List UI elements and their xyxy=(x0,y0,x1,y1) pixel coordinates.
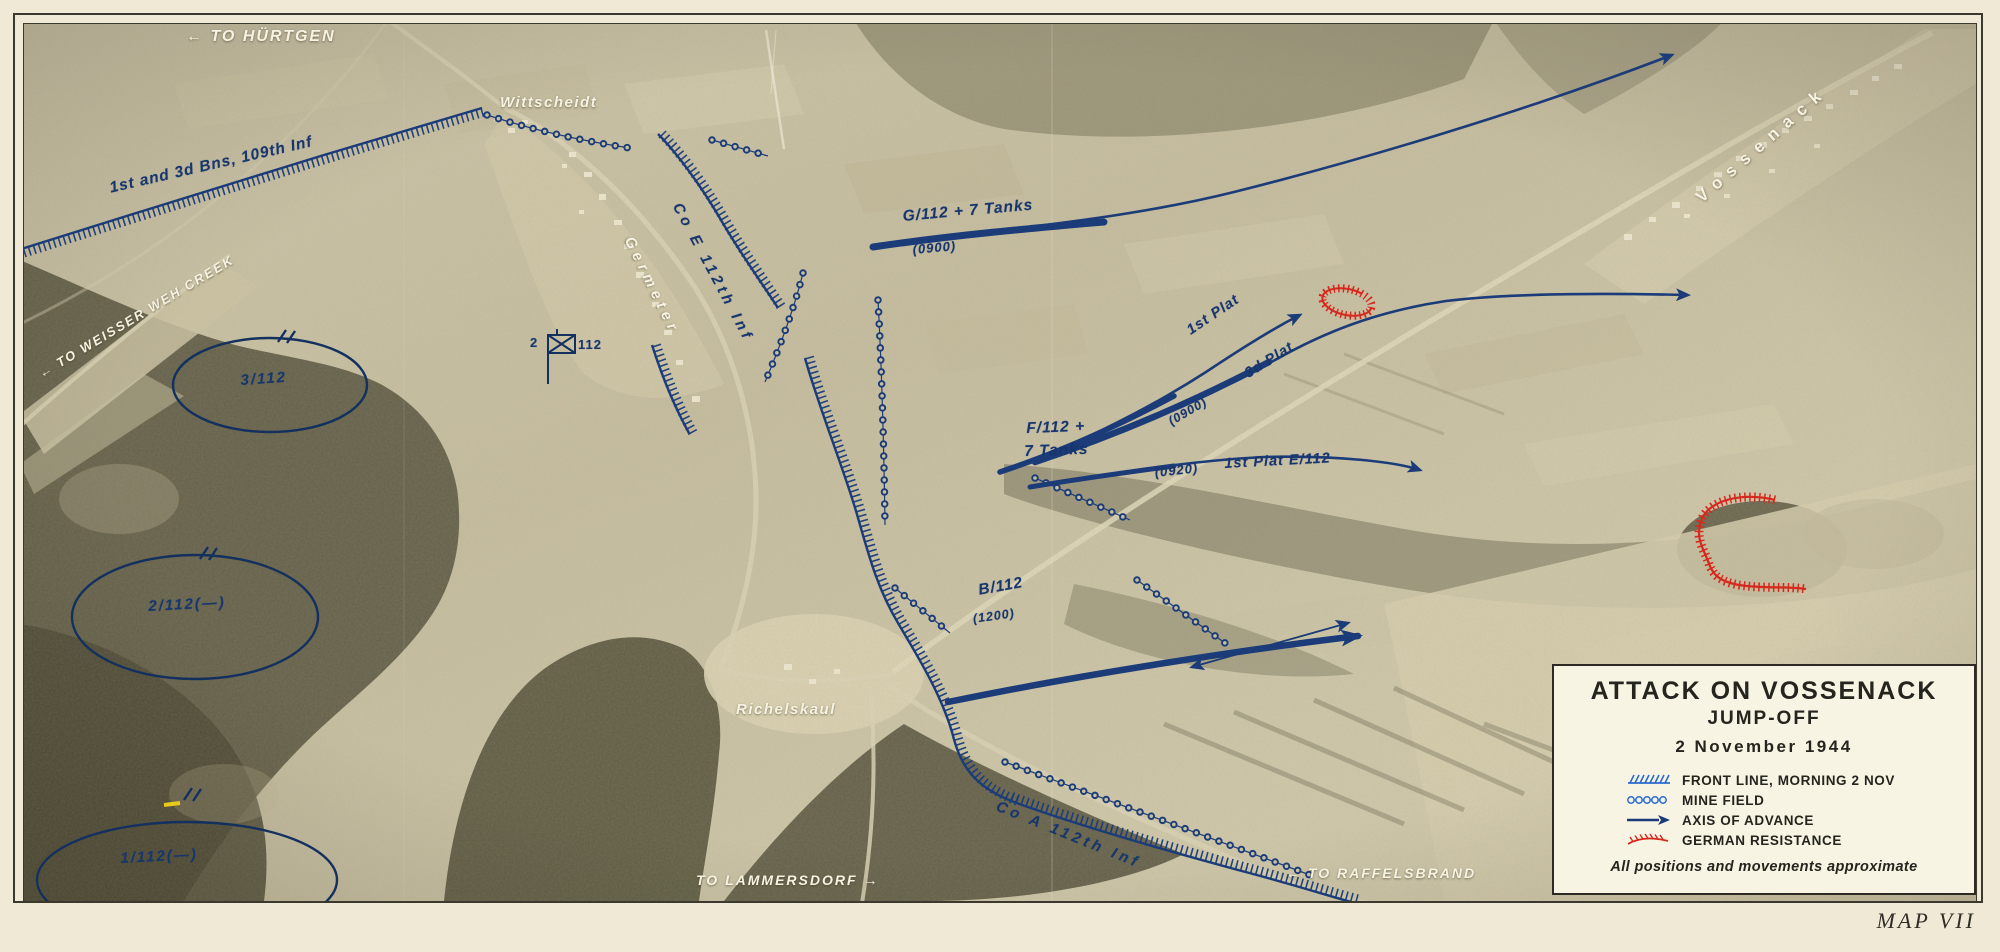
german-resistance-label: GERMAN RESISTANCE xyxy=(1682,833,1842,848)
label-bn-3-112: 3/112 xyxy=(240,369,288,389)
legend-row-resistance: GERMAN RESISTANCE xyxy=(1624,830,1974,850)
label-cp-right: 112 xyxy=(578,337,602,352)
yellow-mark xyxy=(164,803,180,805)
map-number: MAP VII xyxy=(1877,908,1976,934)
label-to-huertgen: ← TO HÜRTGEN xyxy=(186,28,336,46)
label-to-lammersdorf: TO LAMMERSDORF → xyxy=(696,872,879,888)
front-line-icon xyxy=(1624,772,1672,788)
legend-box: ATTACK ON VOSSENACK JUMP-OFF 2 November … xyxy=(1552,664,1976,895)
legend-row-axis: AXIS OF ADVANCE xyxy=(1624,810,1974,830)
label-richelskaul: Richelskaul xyxy=(736,701,836,718)
label-f112-line1: F/112 + xyxy=(1026,418,1085,438)
map-date: 2 November 1944 xyxy=(1554,737,1974,757)
legend-row-mine-field: MINE FIELD xyxy=(1624,790,1974,810)
axis-of-advance-icon xyxy=(1624,812,1672,828)
legend-row-front-line: FRONT LINE, MORNING 2 NOV xyxy=(1624,770,1974,790)
map-subtitle: JUMP-OFF xyxy=(1554,708,1974,730)
mine-field-icon xyxy=(1624,792,1672,808)
label-f112-line2: 7 Tanks xyxy=(1024,441,1089,461)
legend-note: All positions and movements approximate xyxy=(1554,859,1974,875)
map-page: { "page": { "map_number": "MAP VII" }, "… xyxy=(0,0,2000,952)
axis-of-advance-label: AXIS OF ADVANCE xyxy=(1682,813,1814,828)
german-resistance-icon xyxy=(1624,832,1672,848)
label-wittscheidt: Wittscheidt xyxy=(500,94,597,111)
label-cp-left: 2 xyxy=(530,335,538,350)
mine-field-label: MINE FIELD xyxy=(1682,793,1765,808)
label-to-raffelsbrand: ← TO RAFFELSBRAND xyxy=(1286,865,1476,881)
front-line-label: FRONT LINE, MORNING 2 NOV xyxy=(1682,773,1895,788)
map-title: ATTACK ON VOSSENACK xyxy=(1554,677,1974,706)
